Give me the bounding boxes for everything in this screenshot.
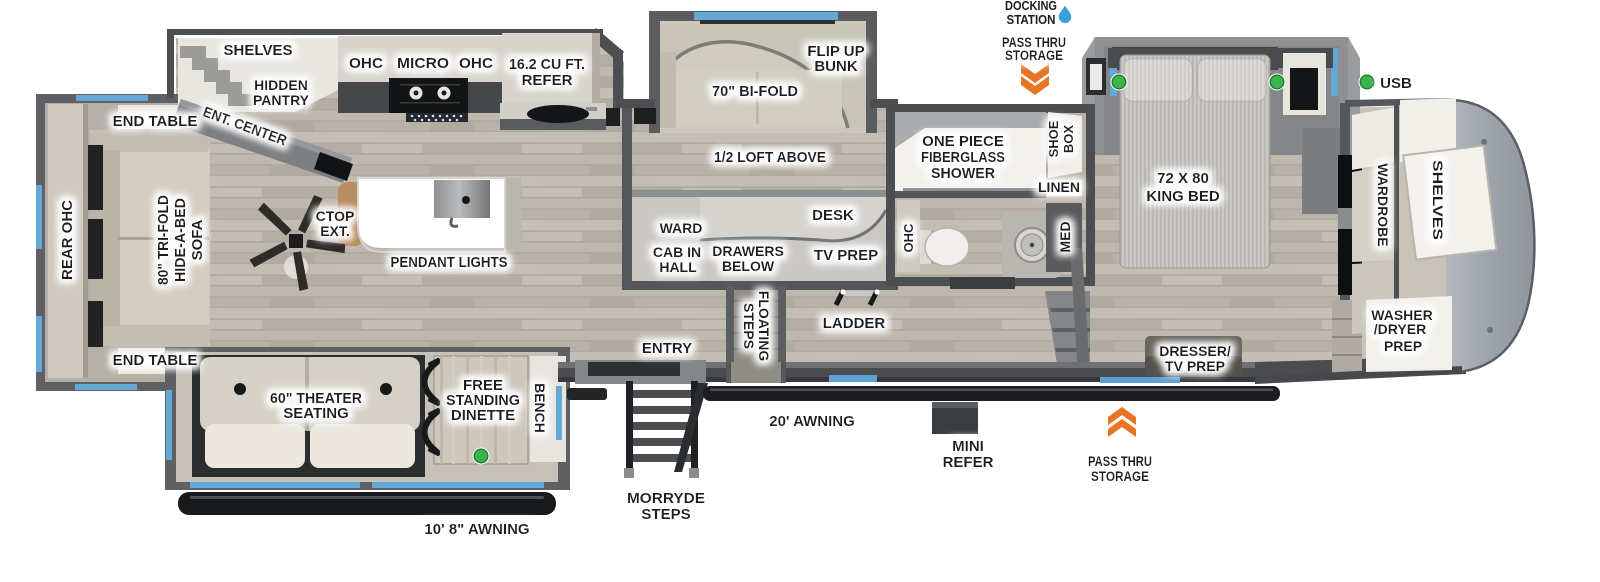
svg-text:EXT.: EXT.	[320, 223, 350, 239]
svg-text:LADDER: LADDER	[823, 315, 886, 332]
svg-text:MICRO: MICRO	[397, 55, 449, 72]
svg-text:CTOP: CTOP	[316, 208, 355, 224]
svg-text:HIDE-A-BED: HIDE-A-BED	[172, 198, 189, 282]
svg-text:SHOWER: SHOWER	[931, 165, 995, 182]
svg-text:72 X 80: 72 X 80	[1157, 170, 1209, 187]
svg-text:DINETTE: DINETTE	[451, 407, 515, 424]
svg-text:HALL: HALL	[659, 259, 697, 275]
svg-text:WARD: WARD	[660, 220, 703, 236]
svg-text:20' AWNING: 20' AWNING	[769, 413, 855, 430]
svg-text:MED: MED	[1057, 221, 1073, 252]
svg-text:KING BED: KING BED	[1146, 188, 1220, 205]
svg-text:STEPS: STEPS	[741, 303, 757, 349]
svg-text:TV PREP: TV PREP	[1165, 358, 1225, 374]
svg-text:STEPS: STEPS	[641, 506, 690, 523]
svg-text:PANTRY: PANTRY	[253, 92, 310, 108]
svg-text:/DRYER: /DRYER	[1374, 321, 1426, 337]
svg-text:ONE PIECE: ONE PIECE	[922, 133, 1004, 150]
svg-text:STORAGE: STORAGE	[1005, 47, 1063, 63]
svg-text:OHC: OHC	[901, 223, 916, 253]
svg-text:HIDDEN: HIDDEN	[254, 77, 308, 93]
svg-text:CAB IN: CAB IN	[653, 244, 701, 260]
svg-text:PENDANT LIGHTS: PENDANT LIGHTS	[391, 254, 508, 271]
svg-text:10' 8" AWNING: 10' 8" AWNING	[424, 521, 529, 538]
svg-text:TV PREP: TV PREP	[814, 247, 878, 264]
svg-text:DRAWERS: DRAWERS	[712, 243, 784, 259]
svg-text:1/2 LOFT ABOVE: 1/2 LOFT ABOVE	[714, 149, 826, 166]
svg-text:SHELVES: SHELVES	[224, 42, 293, 59]
svg-text:LINEN: LINEN	[1038, 179, 1080, 195]
svg-text:16.2 CU FT.: 16.2 CU FT.	[509, 56, 585, 73]
svg-text:WARDROBE: WARDROBE	[1375, 163, 1391, 246]
svg-text:OHC: OHC	[349, 55, 383, 72]
svg-text:MORRYDE: MORRYDE	[627, 490, 705, 507]
svg-text:FIBERGLASS: FIBERGLASS	[921, 149, 1005, 166]
svg-text:USB: USB	[1380, 75, 1412, 92]
svg-text:BUNK: BUNK	[814, 58, 857, 75]
svg-text:SEATING: SEATING	[283, 405, 349, 422]
svg-text:80" TRI-FOLD: 80" TRI-FOLD	[155, 195, 172, 285]
svg-text:PASS THRU: PASS THRU	[1088, 453, 1152, 469]
svg-text:SHOE: SHOE	[1046, 120, 1061, 157]
svg-text:DESK: DESK	[812, 207, 854, 224]
svg-text:BELOW: BELOW	[722, 258, 775, 274]
svg-text:OHC: OHC	[459, 55, 493, 72]
svg-text:STATION: STATION	[1007, 12, 1056, 27]
svg-text:MINI: MINI	[952, 438, 984, 455]
svg-text:BENCH: BENCH	[532, 383, 548, 433]
svg-text:SHELVES: SHELVES	[1430, 160, 1446, 240]
svg-text:REFER: REFER	[943, 454, 994, 471]
svg-text:STORAGE: STORAGE	[1091, 468, 1149, 484]
svg-text:FLOATING: FLOATING	[756, 291, 772, 362]
svg-text:DRESSER/: DRESSER/	[1159, 343, 1231, 359]
svg-text:SOFA: SOFA	[189, 219, 206, 260]
svg-text:BOX: BOX	[1061, 125, 1076, 154]
svg-text:ENTRY: ENTRY	[642, 340, 692, 357]
svg-text:70" BI-FOLD: 70" BI-FOLD	[712, 83, 798, 100]
svg-text:END TABLE: END TABLE	[113, 352, 198, 369]
svg-text:END TABLE: END TABLE	[113, 113, 198, 130]
svg-text:REFER: REFER	[522, 72, 573, 89]
svg-text:PREP: PREP	[1384, 338, 1422, 354]
svg-text:REAR OHC: REAR OHC	[59, 200, 76, 280]
